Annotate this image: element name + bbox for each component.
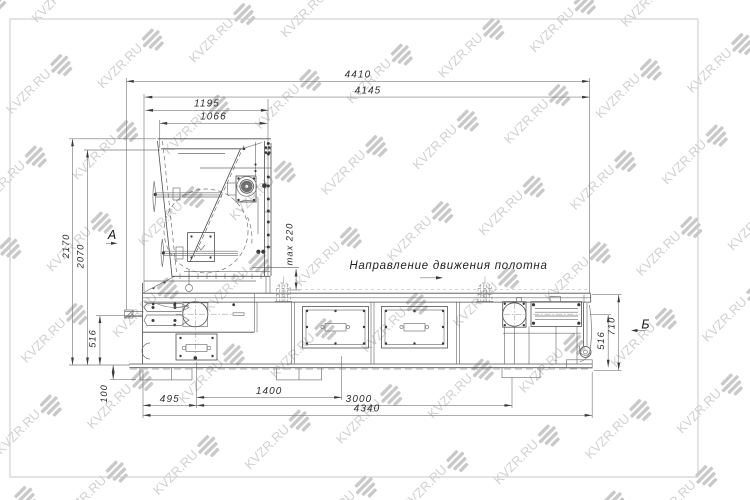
svg-text:516: 516 [596,331,606,350]
svg-text:516: 516 [88,329,98,348]
svg-text:4145: 4145 [355,86,382,97]
svg-text:1400: 1400 [256,386,283,397]
svg-text:Б: Б [641,318,649,332]
svg-text:1066: 1066 [200,112,227,123]
svg-text:495: 495 [160,394,180,405]
svg-text:4340: 4340 [354,404,381,415]
svg-text:2070: 2070 [76,244,86,270]
svg-text:2170: 2170 [61,234,71,260]
svg-text:4410: 4410 [345,70,372,81]
svg-text:1195: 1195 [194,99,220,110]
svg-text:А: А [107,228,116,242]
svg-text:100: 100 [99,384,109,403]
svg-text:Направление движения полотна: Направление движения полотна [349,260,547,272]
svg-text:max 220: max 220 [285,223,295,266]
